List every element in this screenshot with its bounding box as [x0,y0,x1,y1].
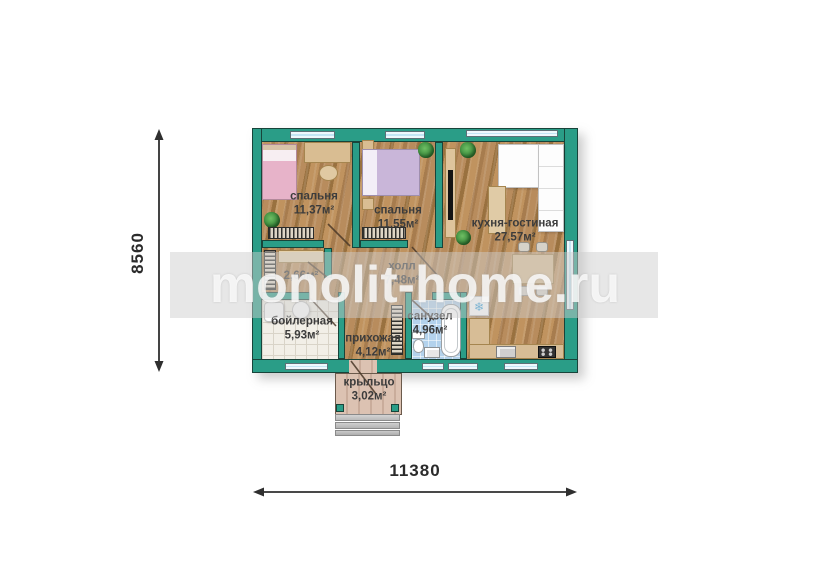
porch-step [335,430,400,436]
room-label-kitchen-living: кухня-гостиная 27,57м² [472,217,559,246]
height-dimension-arrow [150,128,168,373]
plant-icon [460,142,476,158]
plant-icon [264,212,280,228]
room-label-boiler: бойлерная 5,93м² [271,315,333,344]
room-area: 4,12м² [356,347,391,359]
window-living-panoramic [466,130,558,137]
plant-icon [456,230,471,245]
stove-icon [538,346,556,358]
room-label-bedroom1: спальня 11,37м² [290,190,338,219]
window-boiler [285,363,328,370]
sofa-chaise [498,144,540,188]
entrance-threshold [349,360,377,373]
floor-plan: ❄ спальня 11,37м² спальня 11,55м² кухня-… [252,128,578,373]
wall-bed2-living [435,142,443,248]
width-dimension-arrow [252,483,578,501]
bathroom-sink [424,347,440,358]
room-area: 3,02м² [352,391,387,403]
window-bathroom [422,363,444,370]
wall-bed2-bottom [360,240,408,248]
kitchen-counter-side [469,318,490,346]
room-area: 4,96м² [413,325,448,337]
outer-wall-left [252,128,262,373]
room-area: 27,57м² [494,232,535,244]
watermark: monolit-home.ru [176,252,654,318]
room-area: 11,55м² [378,219,418,231]
desk [304,142,351,163]
height-dimension-label: 8560 [128,223,148,283]
porch-step [335,414,400,421]
room-area: 11,37м² [294,205,334,217]
room-name: спальня [290,191,338,203]
plant-icon [418,142,434,158]
wall-bed1-bed2 [352,142,360,248]
room-name: прихожая [345,333,400,345]
window-bedroom2 [385,131,425,139]
porch-post [391,404,399,412]
window-bedroom1 [290,131,335,139]
bed-double-lavender [362,149,420,196]
width-dimension-label: 11380 [252,461,578,481]
kitchen-sink [496,346,516,358]
room-name: крыльцо [343,377,394,389]
toilet-bowl [413,339,424,353]
room-label-entry: прихожая 4,12м² [345,332,400,361]
room-name: кухня-гостиная [472,218,559,230]
room-area: 5,93м² [285,330,320,342]
radiator-bedroom1 [268,227,314,239]
porch-post [336,404,344,412]
wall-bed1-bottom [262,240,324,248]
room-label-porch: крыльцо 3,02м² [343,376,394,405]
window-kitchen-1 [448,363,478,370]
window-kitchen-2 [504,363,538,370]
porch-step [335,422,400,429]
nightstand [362,198,374,210]
room-label-bedroom2: спальня 11,55м² [374,204,422,233]
tv-icon [448,170,453,220]
desk-chair [319,165,338,181]
room-name: спальня [374,205,422,217]
